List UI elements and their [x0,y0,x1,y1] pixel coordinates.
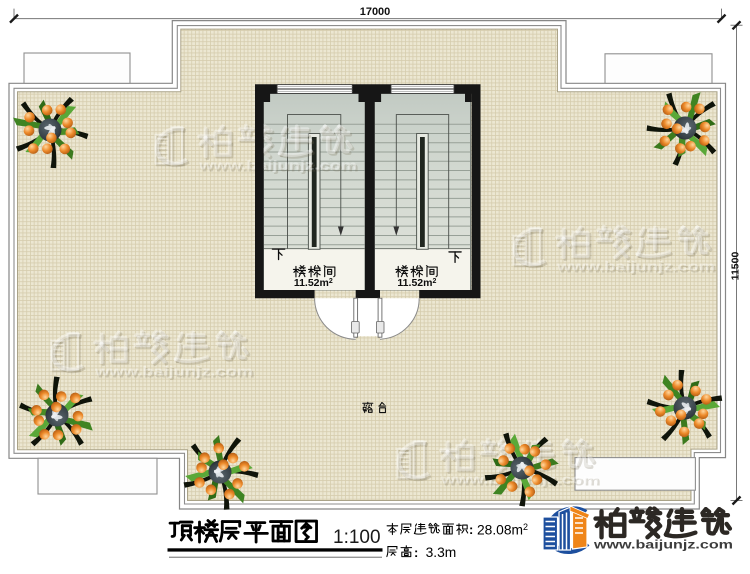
svg-text:1:100: 1:100 [333,527,381,548]
svg-text::: : [414,545,418,560]
svg-text:28.08m2: 28.08m2 [477,522,528,538]
svg-text:www.baijunjz.com: www.baijunjz.com [198,158,357,173]
svg-text::: : [469,522,473,537]
svg-text:11.52m2: 11.52m2 [397,277,436,289]
svg-text:www.baijunjz.com: www.baijunjz.com [593,538,733,552]
svg-text:11.52m2: 11.52m2 [294,277,333,289]
svg-text:11500: 11500 [730,252,742,281]
svg-text:3.3m: 3.3m [426,545,457,560]
svg-text:www.baijunjz.com: www.baijunjz.com [556,259,715,274]
svg-text:www.baijunjz.com: www.baijunjz.com [94,364,253,379]
svg-text:17000: 17000 [360,6,391,18]
